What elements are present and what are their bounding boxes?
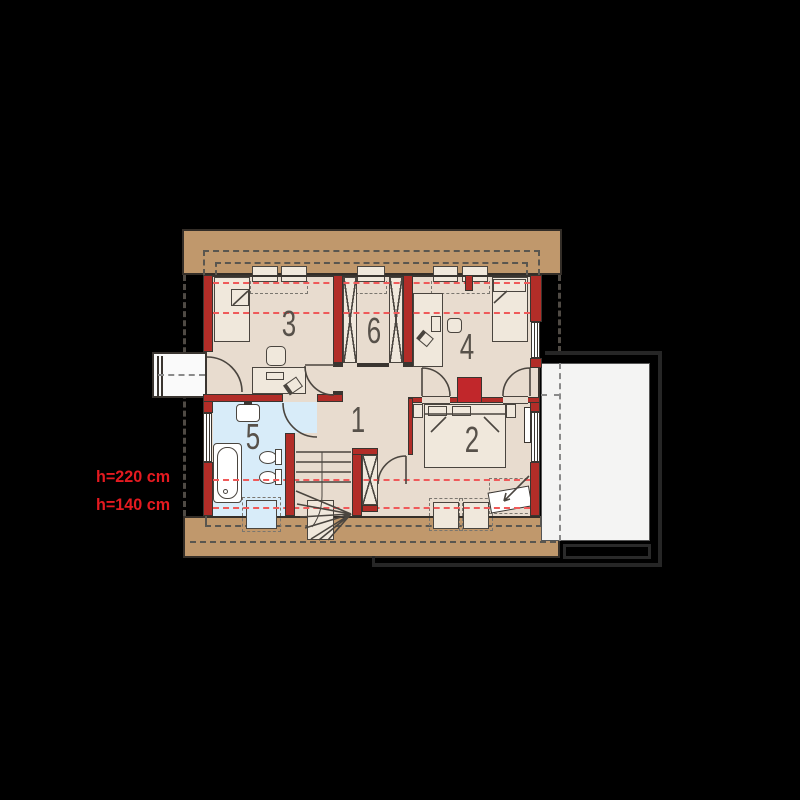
pillow-room2-left [428,406,447,416]
wall-bath-room3 [317,394,343,402]
wall-segment [203,462,213,516]
wall-stairs-left [285,433,295,516]
height-line-140-top [213,282,530,284]
roof-window-dashed [459,498,493,531]
wall-stairs-cap [352,448,378,455]
height-label-140: h=140 cm [96,495,170,515]
wall-wardrobe-base [362,505,378,512]
bath-skylight-dashed [242,497,281,532]
height-label-220: h=220 cm [96,467,170,487]
room-label-3: 3 [282,303,296,345]
window-glazing [537,413,538,461]
room-label-4: 4 [460,326,474,368]
window-glazing [534,323,535,357]
bathroom-floor-upper [213,402,317,433]
window-glazing [537,323,538,357]
pillow-room3 [231,289,249,306]
knee-wall-top [213,275,542,277]
chimney-room2 [457,377,482,403]
roof-dashed-line-bottom [190,541,556,543]
floor-plan-canvas: 1 2 3 4 5 6 h=220 cm h=140 cm [0,0,800,800]
window-bathroom [203,413,212,462]
radiator-room2 [524,407,531,443]
stair-roof-cutout [307,500,334,540]
threshold [403,363,413,367]
roof-recess [281,266,307,282]
wall-segment [530,358,542,368]
wall-bath-room3 [203,394,283,402]
wall-stairs-right [352,448,362,516]
wall-room6-room4 [403,275,413,363]
dormer-window-glazing [161,356,163,396]
toilet-tank [275,449,282,465]
wall-segment [530,462,540,516]
chair-room3 [266,346,286,366]
roof-recess [252,266,278,282]
roof-recess [357,266,385,282]
window-glazing [206,414,207,461]
garage-outline-bottom [372,563,662,567]
pillow-room2-right [452,406,471,416]
wardrobe-room6-right [389,277,403,363]
garage-roof [541,363,650,541]
threshold [333,363,343,367]
height-line-220-bottom [213,479,530,481]
nightstand-room2-left [413,404,423,418]
wall-room3-room6 [333,275,343,363]
wall-segment [203,275,213,352]
keyboard-room3 [266,372,284,380]
bed-room3 [214,277,250,342]
dormer-dashed-axis [158,374,205,376]
room-label-6: 6 [367,310,381,352]
window-room2 [531,412,540,462]
garage-vent-box [563,544,651,559]
bathtub-drain [223,489,228,494]
window-glazing [534,413,535,461]
garage-outline-top [545,351,662,355]
garage-outline-right [658,351,662,567]
wall-room2-left [408,398,413,455]
roof-window-dashed [429,498,463,531]
garage-dashed-horizontal [541,394,560,396]
wall-thin-right [538,368,540,397]
bidet-tank [275,469,282,485]
threshold-room6-entry [357,363,389,367]
room-label-2: 2 [465,419,479,461]
roof-recess [433,266,458,282]
nightstand-room2-right [506,404,516,418]
eave-line-right [558,275,561,352]
garage-outline-jog [372,556,375,565]
chimney-top [465,275,473,291]
window-room4 [531,322,540,358]
door-opening [422,396,450,404]
monitor-room4 [431,316,441,332]
garage-dashed-vertical [559,363,561,541]
pillow-room4 [493,279,526,292]
door-opening [503,396,528,404]
room-label-5: 5 [246,416,260,458]
dormer-window-glazing [157,356,159,396]
wardrobe-room6-left [343,277,357,363]
wall-segment [530,275,542,322]
room-label-1: 1 [351,399,365,441]
window-glazing [209,414,210,461]
